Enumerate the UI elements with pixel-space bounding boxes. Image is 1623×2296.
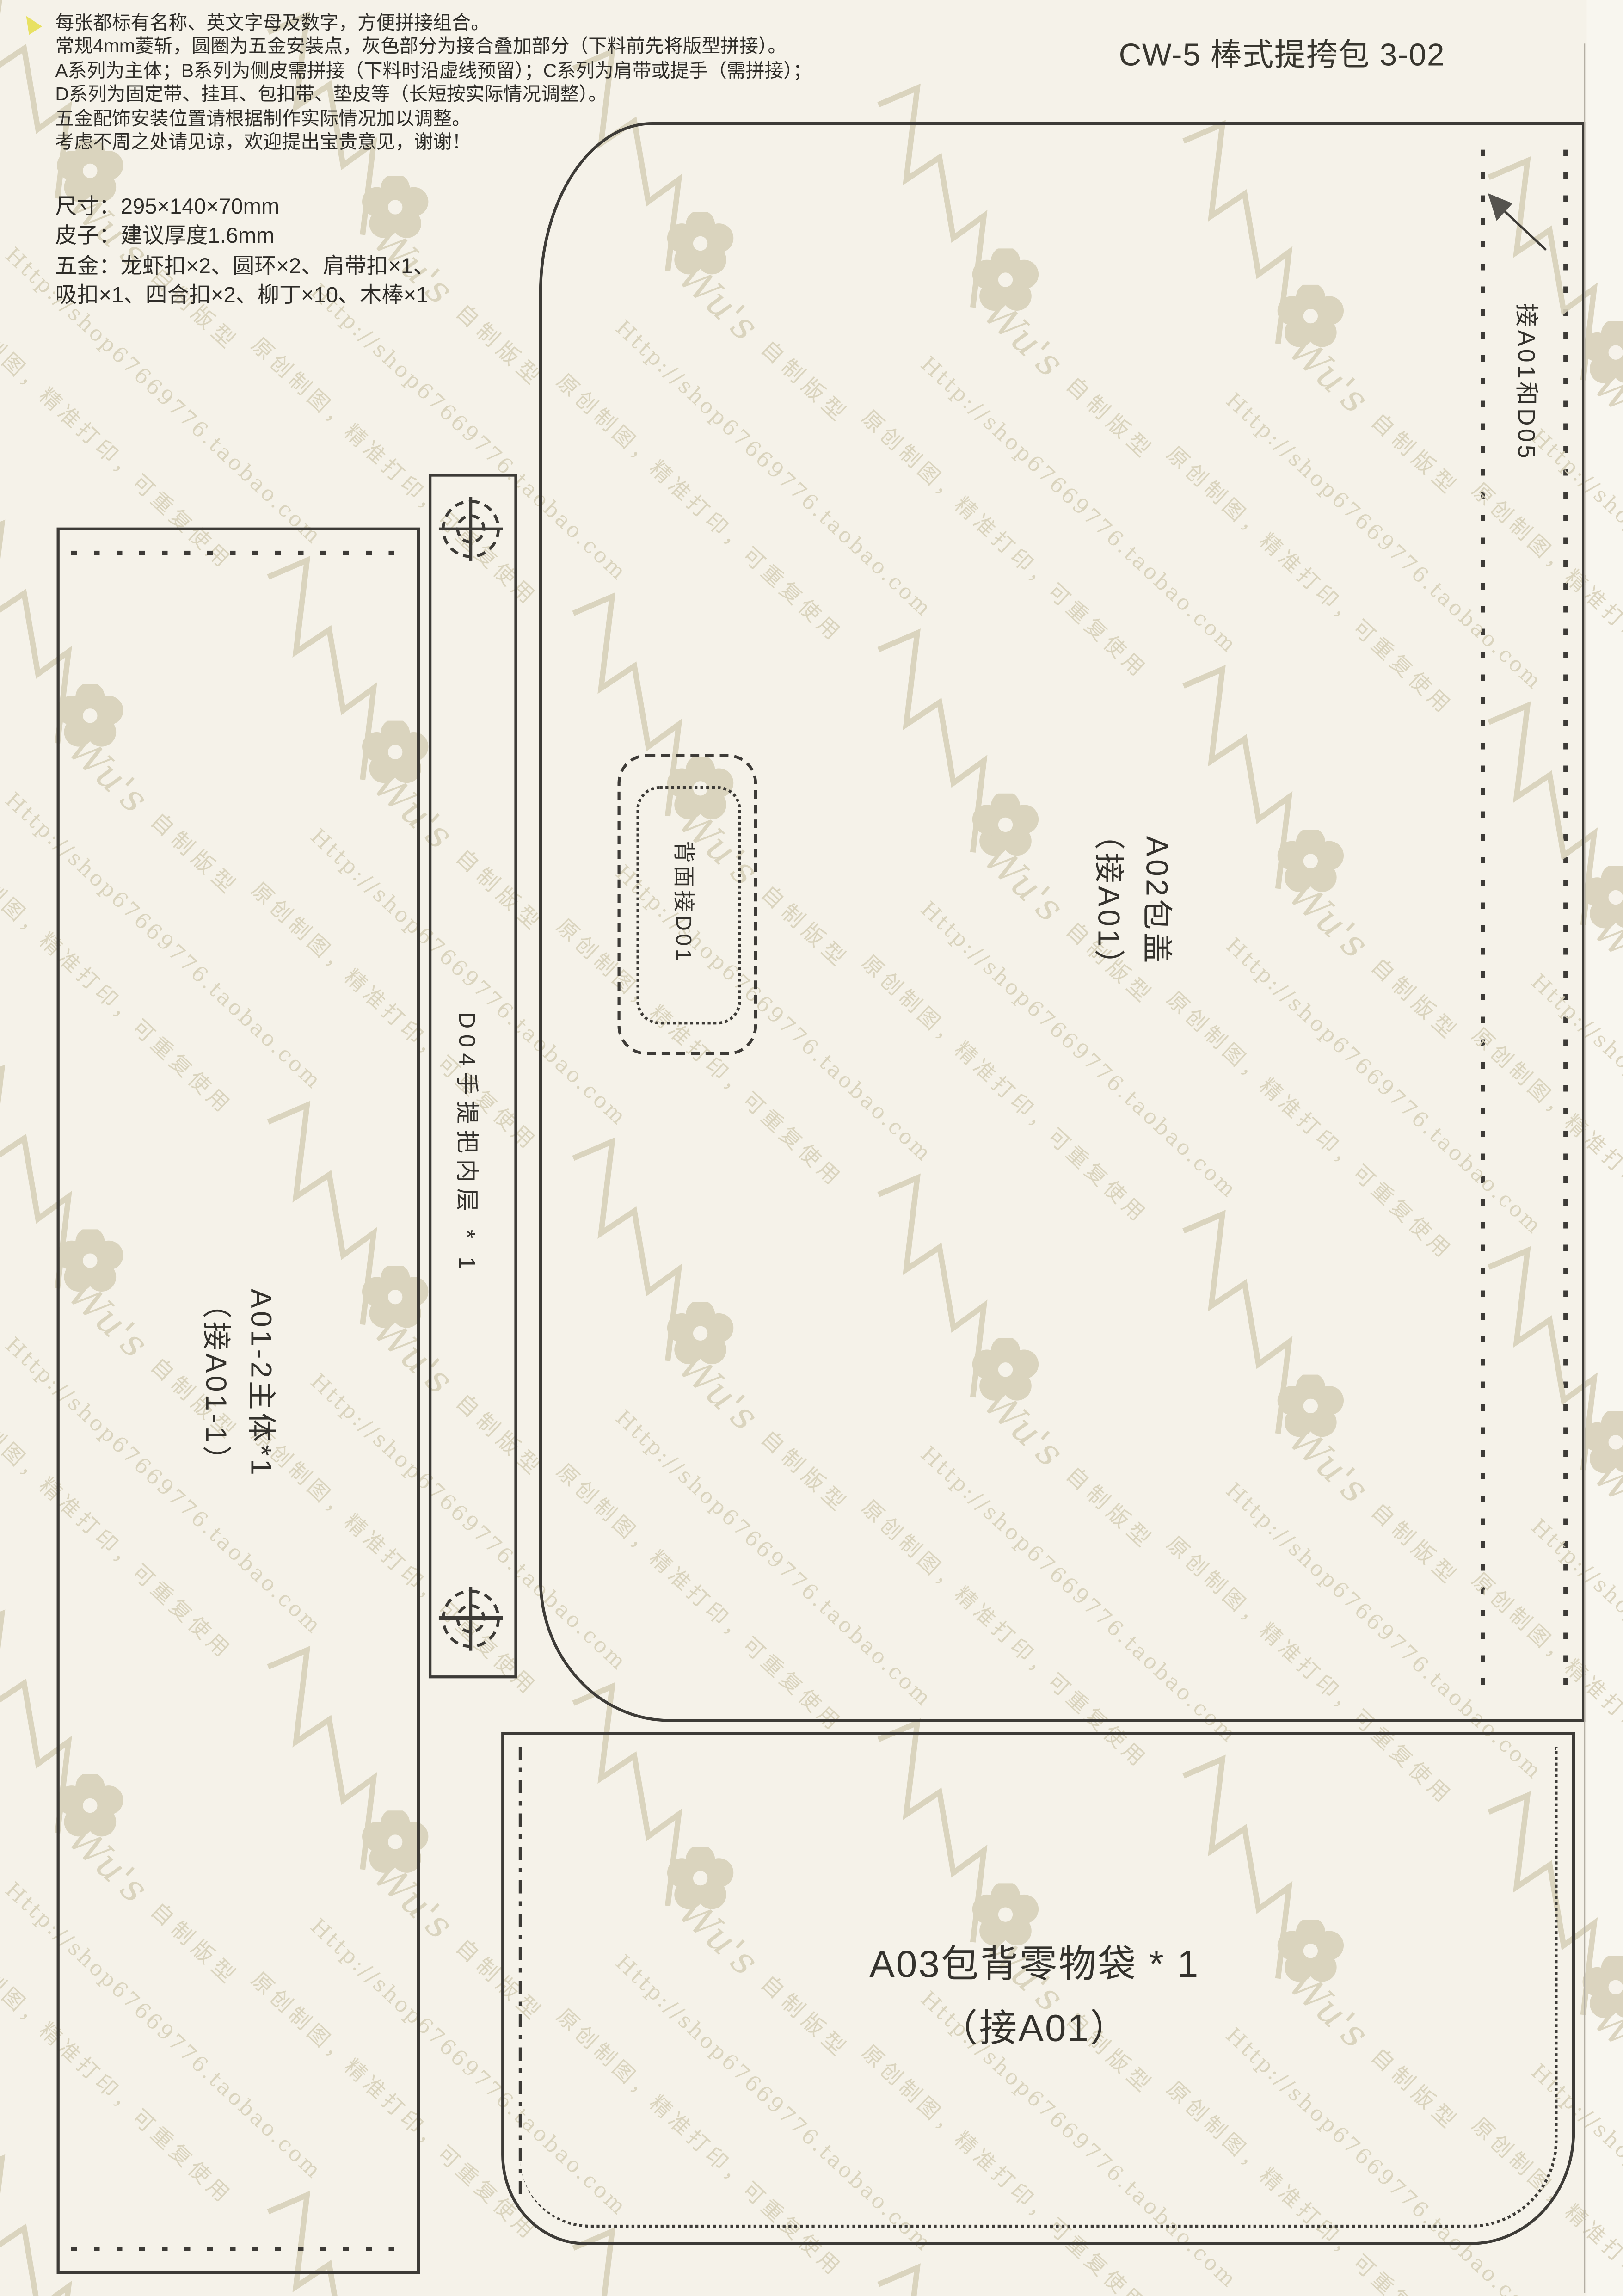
note-line: 五金配饰安装位置请根据制作实际情况加以调整。 (55, 107, 847, 131)
spec-leather: 皮子：建议厚度1.6mm (55, 223, 535, 252)
spec-list: 尺寸：295×140×70mm 皮子：建议厚度1.6mm 五金：龙虾扣×2、圆环… (55, 193, 535, 312)
piece-label-d04: D04手提把内层 * 1 (451, 1012, 486, 1275)
piece-label-a03: A03包背零物袋 * 1 （接A01） (869, 1933, 1199, 2060)
stitch-dots-top (70, 550, 405, 554)
wu-logo-w-icon (865, 2259, 990, 2296)
fold-dashdot-line (518, 1746, 522, 2197)
piece-label-line: （接A01） (869, 1997, 1199, 2060)
watermark-tile: Wu's自制版型 Http://shop67669776.taobao.com … (865, 2259, 1170, 2296)
hardware-install-mark-icon (442, 500, 500, 558)
piece-label-line: A01-2主体*1 (237, 1289, 282, 1478)
sheet-title: CW-5 棒式提挎包 3-02 (1119, 31, 1581, 75)
spec-hardware: 五金：龙虾扣×2、圆环×2、肩带扣×1、 (55, 252, 535, 282)
stitch-dots-bottom (70, 2246, 405, 2251)
piece-label-a01-2: A01-2主体*1 （接A01-1） (192, 1289, 282, 1478)
note-line: 每张都标有名称、英文字母及数字，方便拼接组合。 (55, 12, 847, 36)
note-line: A系列为主体；B系列为侧皮需拼接（下料时沿虚线预留）；C系列为肩带或提手（需拼接… (55, 59, 847, 83)
spec-size: 尺寸：295×140×70mm (55, 193, 535, 223)
note-line: D系列为固定带、挂耳、包扣带、垫皮等（长短按实际情况调整）。 (55, 83, 847, 107)
hardware-install-mark-icon (442, 1589, 500, 1647)
piece-label-line: A03包背零物袋 * 1 (869, 1933, 1199, 1997)
scan-page-edge (1583, 43, 1586, 2293)
piece-label-a02: A02包盖 （接A01） (1084, 819, 1180, 983)
pattern-sheet: Wu's自制版型 Http://shop67669776.taobao.com … (0, 0, 1623, 2296)
join-note-a02: 接A01和D05 (1510, 303, 1545, 461)
piece-label-line: （接A01-1） (192, 1289, 237, 1478)
back-join-label: 背面接D01 (668, 841, 699, 964)
spec-hardware-2: 吸扣×1、四合扣×2、柳丁×10、木棒×1 (55, 282, 535, 312)
piece-label-line: A02包盖 (1132, 819, 1180, 983)
note-line: 常规4mm菱斩，圆圈为五金安装点，灰色部分为接合叠加部分（下料前先将版型拼接）。 (55, 36, 847, 60)
note-line: 考虑不周之处请见谅，欢迎提出宝贵意见，谢谢！ (55, 131, 847, 155)
instruction-notes: 每张都标有名称、英文字母及数字，方便拼接组合。 常规4mm菱斩，圆圈为五金安装点… (55, 12, 847, 154)
join-arrow-icon (1476, 186, 1558, 259)
piece-label-line: （接A01） (1084, 819, 1132, 983)
